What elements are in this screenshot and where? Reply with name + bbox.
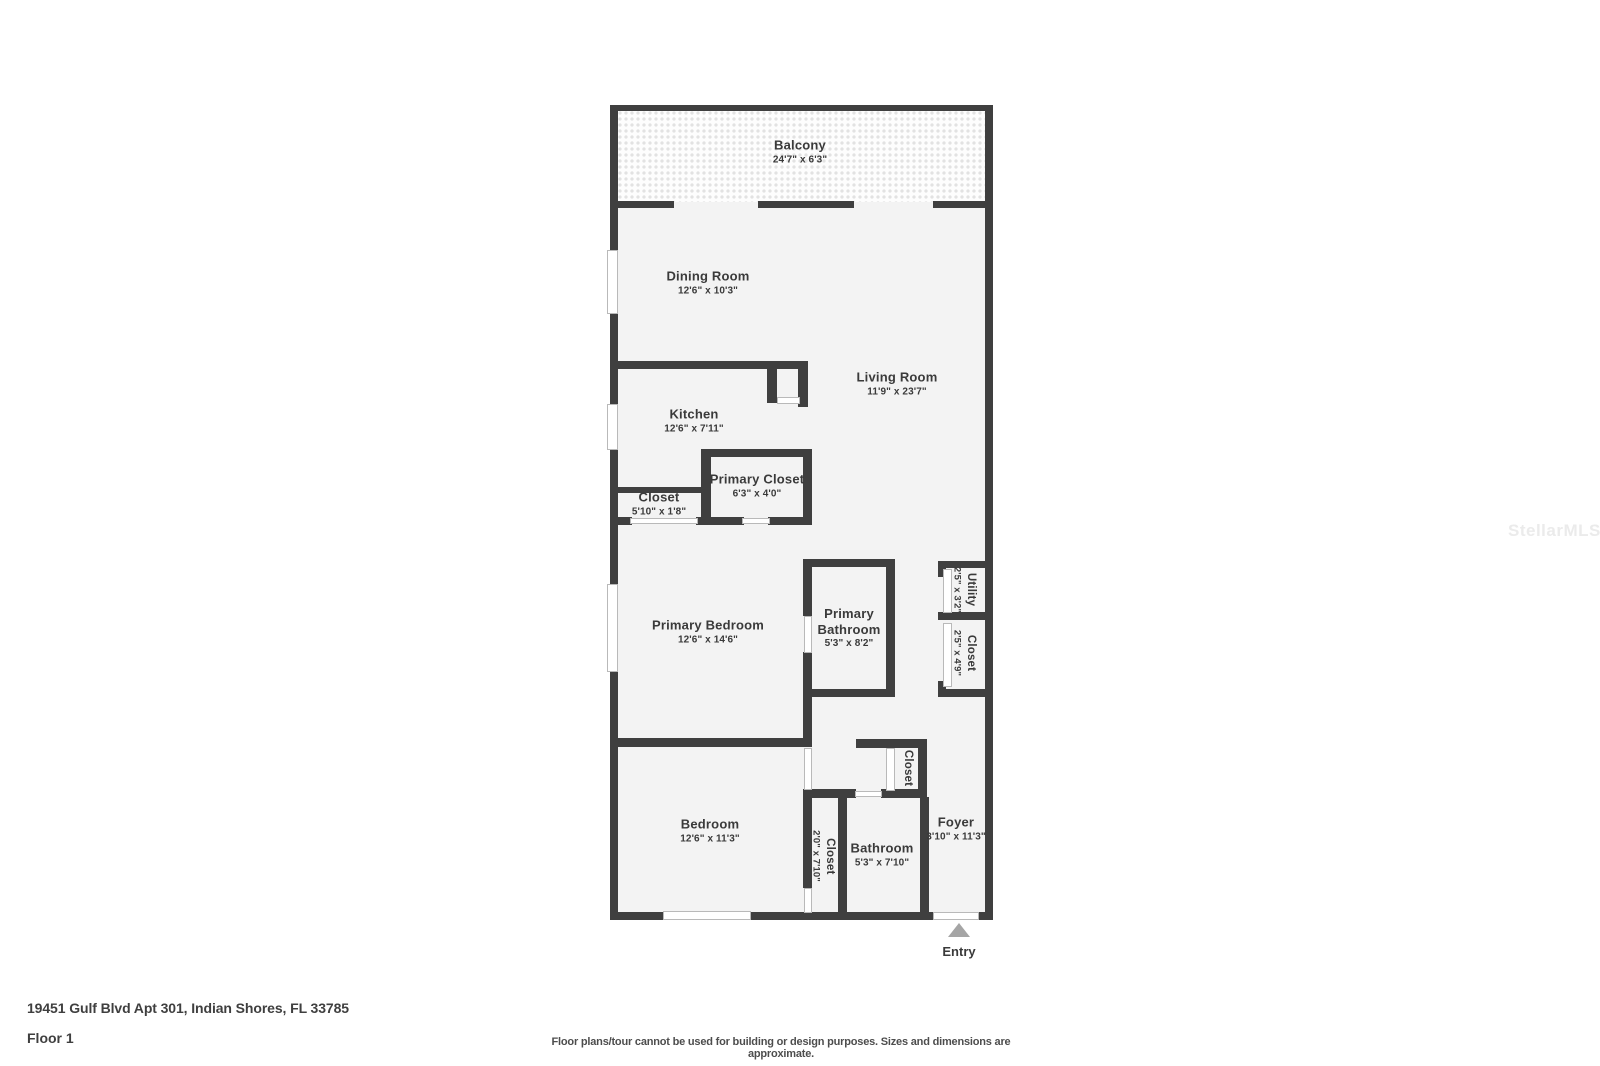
- door-window-opening: [663, 911, 751, 920]
- room-label-bathroom: Bathroom 5'3" x 7'10": [851, 841, 914, 870]
- wall: [803, 449, 812, 525]
- room-label-kitchen: Kitchen 12'6" x 7'11": [664, 407, 723, 436]
- door-window-opening: [855, 791, 882, 797]
- room-label-bedroom: Bedroom 12'6" x 11'3": [680, 817, 739, 846]
- room-name: Closet: [900, 750, 914, 786]
- door-window-opening: [933, 912, 979, 920]
- wall: [758, 201, 854, 208]
- door-window-opening: [886, 748, 895, 791]
- room-dimensions: 2'5" x 3'2": [951, 567, 962, 613]
- door-window-opening: [804, 888, 812, 913]
- wall: [856, 739, 927, 748]
- wall: [812, 789, 856, 798]
- room-label-hall-closet: Closet 5'10" x 1'8": [632, 490, 686, 519]
- room-dimensions: 11'9" x 23'7": [857, 386, 938, 398]
- room-name: Bedroom: [680, 817, 739, 833]
- room-name: Living Room: [857, 370, 938, 386]
- door-window-opening: [607, 250, 618, 314]
- wall: [696, 517, 744, 525]
- room-label-dining-room: Dining Room 12'6" x 10'3": [666, 269, 749, 298]
- room-label-balcony: Balcony 24'7" x 6'3": [773, 138, 827, 167]
- room-dimensions: 12'6" x 14'6": [652, 634, 764, 646]
- room-dimensions: 5'3" x 8'2": [801, 638, 897, 650]
- room-dimensions: 2'5" x 4'9": [951, 630, 962, 676]
- room-label-primary-closet: Primary Closet 6'3" x 4'0": [710, 472, 805, 501]
- wall: [610, 105, 618, 920]
- room-dimensions: 12'6" x 11'3": [680, 833, 739, 845]
- room-dimensions: 2'0" x 7'10": [810, 830, 821, 882]
- room-name: Balcony: [773, 138, 827, 154]
- wall: [838, 797, 847, 913]
- room-dimensions: 6'3" x 4'0": [710, 488, 805, 500]
- wall: [933, 201, 993, 208]
- room-name: Utility: [963, 567, 977, 613]
- wall: [701, 449, 812, 457]
- floor-plan: Balcony 24'7" x 6'3" Dining Room 12'6" x…: [0, 0, 1600, 1066]
- address-text: 19451 Gulf Blvd Apt 301, Indian Shores, …: [27, 1000, 349, 1016]
- door-window-opening: [777, 397, 800, 404]
- floor-label: Floor 1: [27, 1030, 74, 1046]
- room-name: Primary Bathroom: [801, 606, 897, 637]
- room-label-foyer-closet: Closet: [900, 750, 914, 786]
- room-name: Bathroom: [851, 841, 914, 857]
- room-label-foyer: Foyer 3'10" x 11'3": [926, 815, 985, 844]
- wall: [985, 105, 993, 920]
- wall: [610, 201, 674, 208]
- wall: [767, 361, 777, 403]
- room-dimensions: 12'6" x 10'3": [666, 285, 749, 297]
- room-dimensions: 5'10" x 1'8": [632, 506, 686, 518]
- door-window-opening: [804, 748, 812, 790]
- disclaimer-text: Floor plans/tour cannot be used for buil…: [548, 1036, 1014, 1060]
- watermark: StellarMLS: [1508, 521, 1600, 541]
- room-dimensions: 5'3" x 7'10": [851, 857, 914, 869]
- room-name: Closet: [632, 490, 686, 506]
- wall: [610, 517, 632, 525]
- wall: [610, 105, 993, 111]
- wall: [803, 689, 895, 697]
- room-name: Primary Bedroom: [652, 618, 764, 634]
- wall: [938, 612, 986, 620]
- room-label-living-room: Living Room 11'9" x 23'7": [857, 370, 938, 399]
- room-label-primary-bedroom: Primary Bedroom 12'6" x 14'6": [652, 618, 764, 647]
- room-label-primary-bathroom: Primary Bathroom 5'3" x 8'2": [801, 606, 897, 650]
- room-name: Foyer: [926, 815, 985, 831]
- door-window-opening: [742, 518, 770, 524]
- room-name: Kitchen: [664, 407, 723, 423]
- entry-label: Entry: [942, 944, 975, 959]
- wall: [803, 652, 812, 747]
- room-label-utility: Utility 2'5" x 3'2": [951, 567, 977, 613]
- door-window-opening: [630, 518, 698, 524]
- room-name: Closet: [963, 630, 977, 676]
- room-name: Closet: [822, 830, 836, 882]
- room-dimensions: 12'6" x 7'11": [664, 423, 723, 435]
- room-label-utility-closet: Closet 2'5" x 4'9": [951, 630, 977, 676]
- room-dimensions: 24'7" x 6'3": [773, 154, 827, 166]
- wall: [610, 738, 812, 747]
- room-dimensions: 3'10" x 11'3": [926, 831, 985, 843]
- floor-plan-page: Balcony 24'7" x 6'3" Dining Room 12'6" x…: [0, 0, 1600, 1066]
- wall: [803, 559, 895, 567]
- room-name: Dining Room: [666, 269, 749, 285]
- door-window-opening: [607, 404, 618, 450]
- entry-arrow-icon: [948, 923, 970, 937]
- room-label-bedroom-closet: Closet 2'0" x 7'10": [810, 830, 836, 882]
- room-name: Primary Closet: [710, 472, 805, 488]
- door-window-opening: [607, 584, 618, 672]
- wall: [610, 361, 808, 369]
